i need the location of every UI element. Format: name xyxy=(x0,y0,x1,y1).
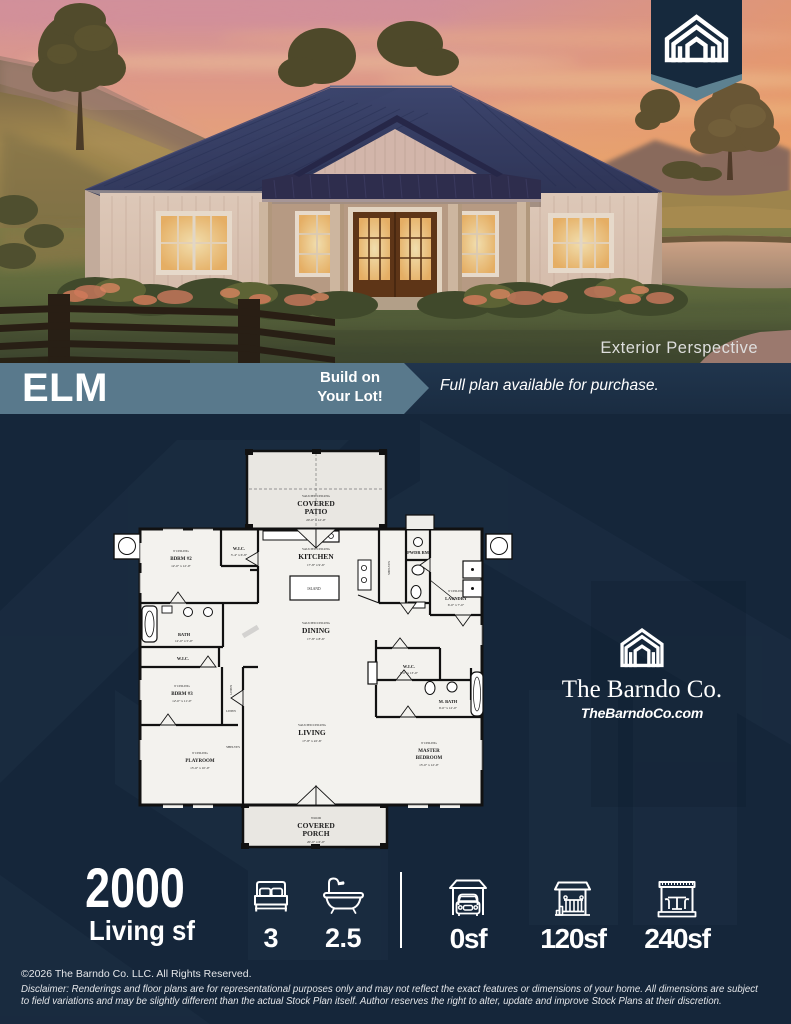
svg-text:Exterior Perspective: Exterior Perspective xyxy=(600,339,758,357)
